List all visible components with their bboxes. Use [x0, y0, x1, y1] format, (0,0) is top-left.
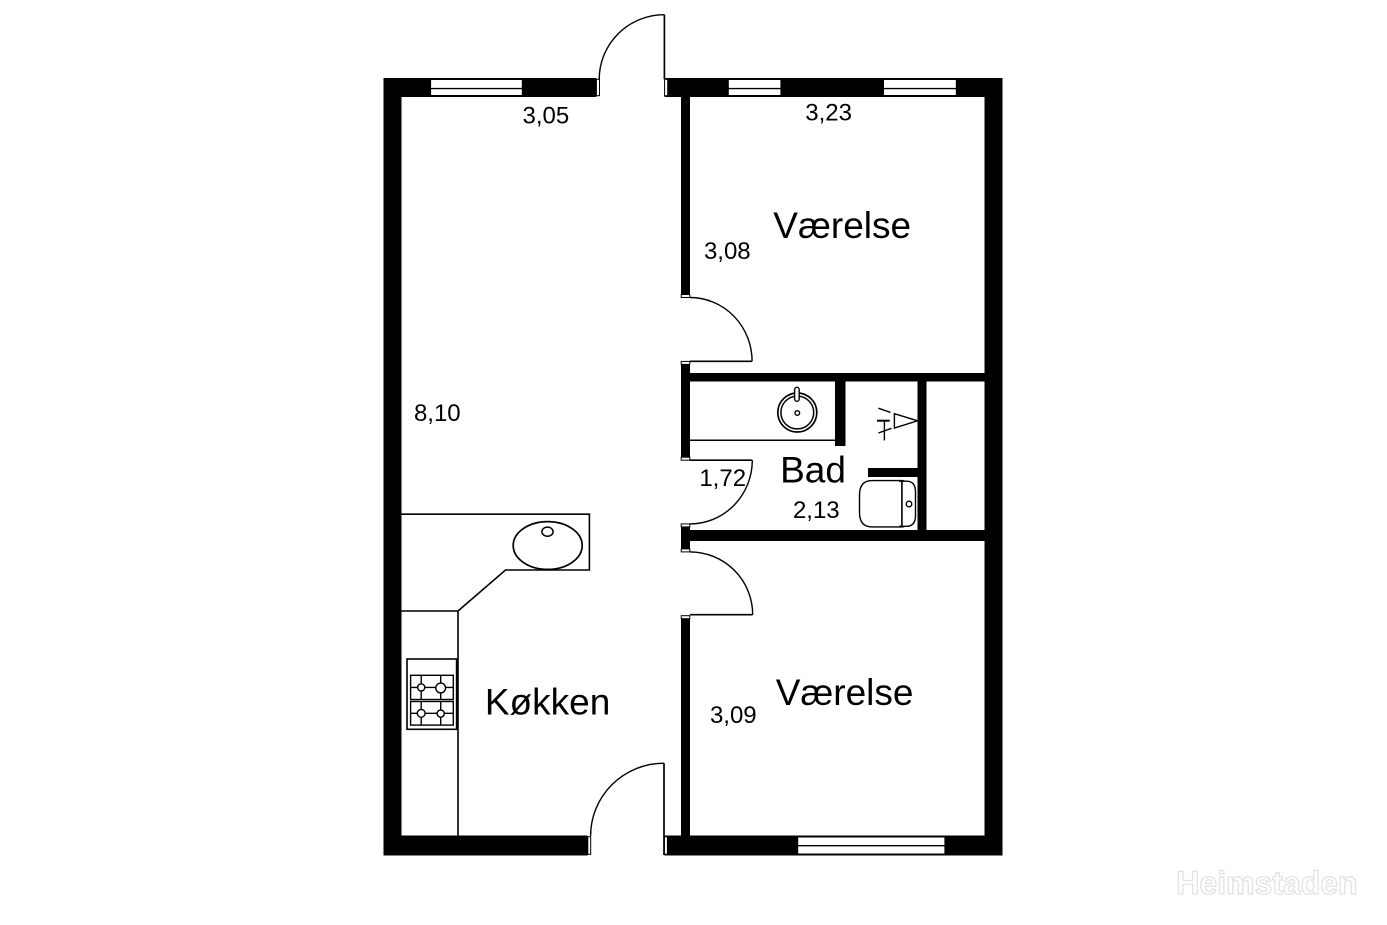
svg-text:Værelse: Værelse: [776, 672, 914, 713]
svg-text:1,72: 1,72: [699, 465, 746, 492]
svg-text:3,23: 3,23: [805, 100, 852, 127]
svg-text:Bad: Bad: [780, 450, 846, 491]
svg-text:Køkken: Køkken: [485, 682, 610, 723]
svg-text:3,05: 3,05: [523, 103, 570, 130]
svg-text:2,13: 2,13: [793, 497, 840, 524]
svg-text:Værelse: Værelse: [773, 205, 911, 246]
svg-text:3,08: 3,08: [704, 238, 751, 265]
svg-text:Heimstaden: Heimstaden: [1176, 865, 1357, 901]
svg-text:8,10: 8,10: [414, 400, 461, 427]
svg-text:3,09: 3,09: [710, 702, 757, 729]
